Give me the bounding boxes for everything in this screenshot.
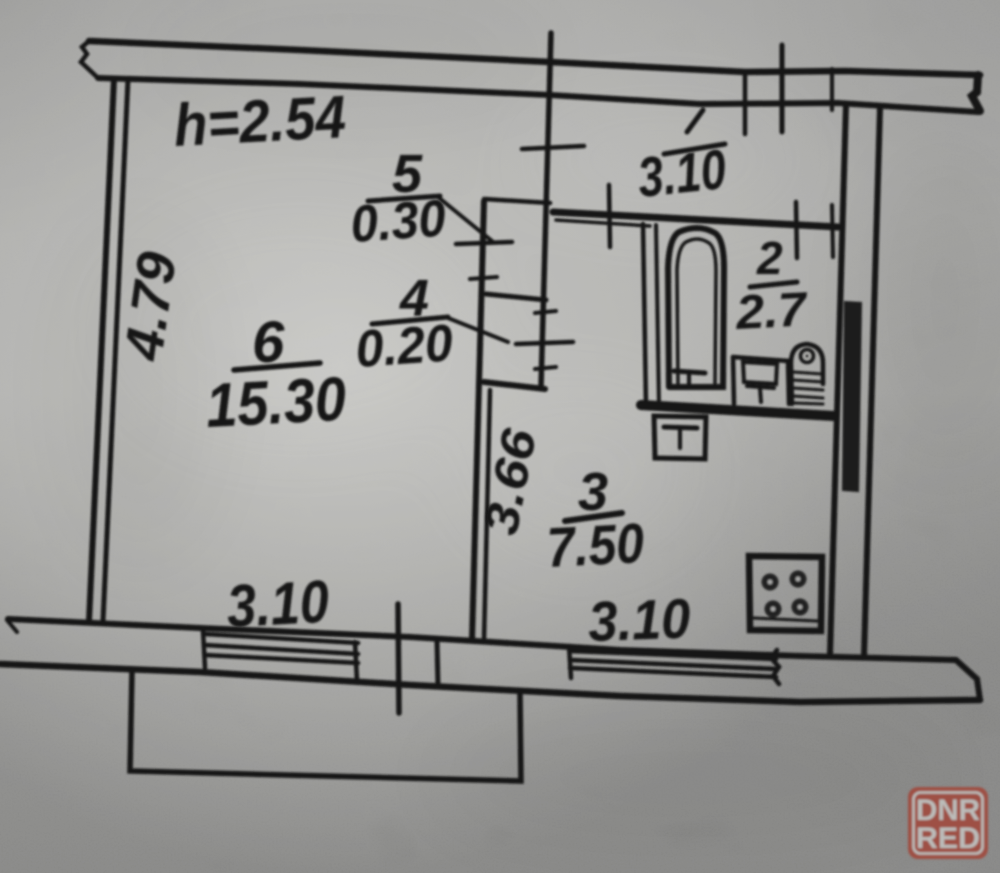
svg-text:RED: RED	[916, 822, 980, 855]
svg-text:3.10: 3.10	[587, 586, 691, 653]
svg-text:2: 2	[756, 232, 783, 284]
svg-text:3.10: 3.10	[225, 568, 330, 640]
svg-text:15.30: 15.30	[204, 365, 347, 441]
svg-text:7.50: 7.50	[545, 511, 645, 579]
svg-text:6: 6	[252, 310, 285, 375]
svg-text:3.10: 3.10	[635, 137, 729, 209]
svg-text:2.7: 2.7	[734, 283, 810, 340]
svg-text:0.20: 0.20	[354, 314, 455, 379]
svg-text:0.30: 0.30	[349, 189, 448, 253]
svg-text:h=2.54: h=2.54	[172, 83, 347, 159]
